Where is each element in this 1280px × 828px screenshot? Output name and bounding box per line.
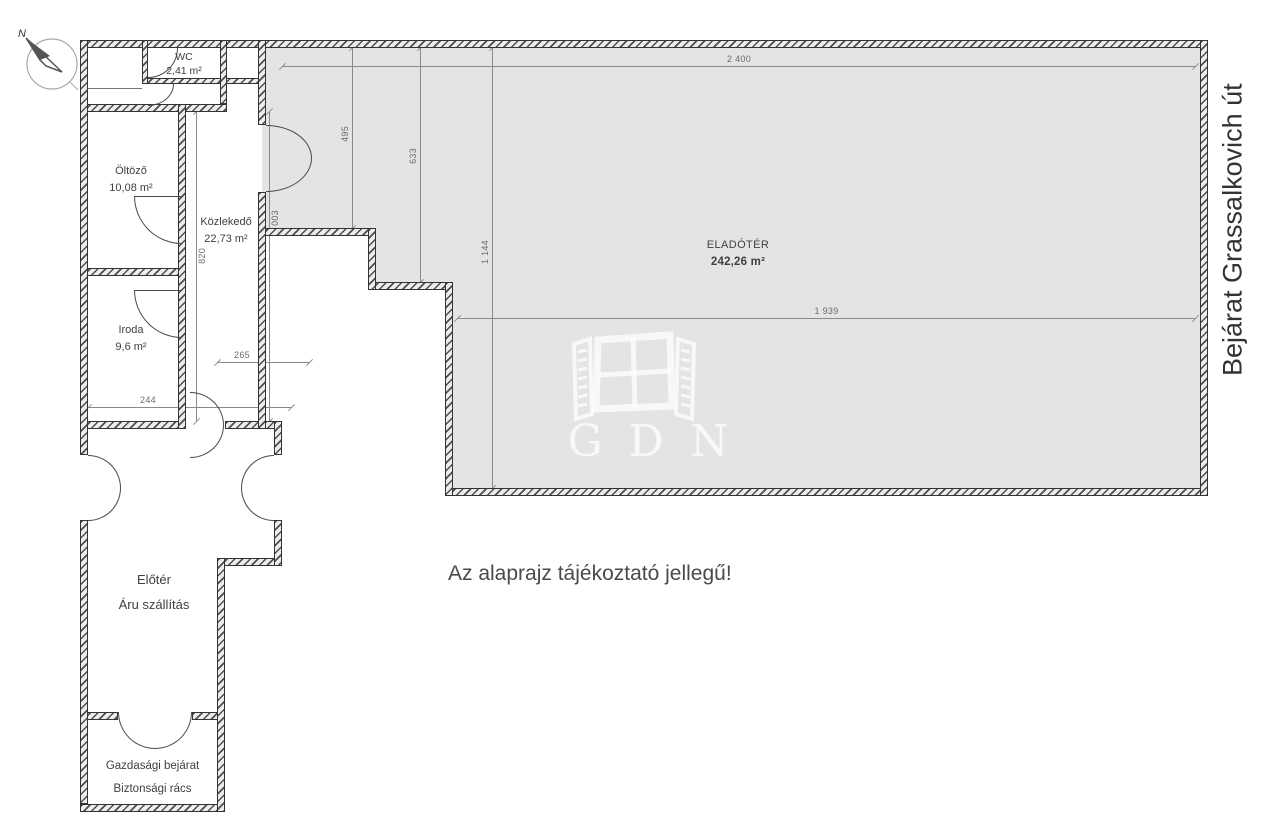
wall-left-upper — [80, 40, 88, 455]
gazdasagi-door-arc-left — [118, 712, 155, 749]
wc-door2-arc — [148, 84, 174, 106]
cell-divider-line — [88, 88, 142, 89]
wall-eladoter-bottom — [445, 488, 1208, 496]
wall-corridor-right-upper — [258, 40, 266, 125]
wall-eloter-right-upper — [274, 421, 282, 455]
eloter-right-door-arc-top — [241, 455, 274, 488]
eladoter-label: ELADÓTÉR 242,26 m² — [638, 237, 838, 271]
wall-iroda-bottom — [80, 421, 186, 429]
dim-line-495 — [352, 48, 353, 228]
kozlekedo-label: Közlekedő 22,73 m² — [188, 214, 264, 248]
eladoter-fill-top — [262, 44, 1204, 234]
dim-line-1939 — [457, 318, 1196, 319]
wc-name: WC — [175, 51, 193, 63]
corridor-door-arc-bottom — [190, 425, 224, 458]
eladoter-name: ELADÓTÉR — [707, 239, 770, 251]
dim-label-820: 820 — [197, 248, 207, 264]
dim-line-1144 — [492, 48, 493, 488]
gazdasagi-door-arc-right — [155, 712, 192, 749]
dim-line-820 — [196, 112, 197, 421]
wall-wc-divider-v2 — [220, 40, 227, 104]
oltozo-area: 10,08 m² — [86, 180, 176, 197]
wall-top — [80, 40, 1208, 48]
iroda-label: Iroda 9,6 m² — [86, 322, 176, 356]
gdn-window-icon — [566, 330, 702, 422]
gazdasagi-line1: Gazdasági bejárat — [106, 760, 199, 772]
oltozo-door-arc — [134, 196, 182, 244]
dim-label-1144: 1 144 — [480, 240, 490, 264]
dim-label-1939: 1 939 — [457, 306, 1196, 316]
wall-oltozo-iroda — [80, 268, 186, 276]
iroda-area: 9,6 m² — [86, 339, 176, 356]
eladoter-area: 242,26 m² — [638, 254, 838, 271]
dim-label-633: 633 — [408, 148, 418, 164]
corridor-door-arc-top — [190, 392, 224, 425]
oltozo-name: Öltöző — [115, 165, 147, 177]
gazdasagi-line2: Biztonsági rács — [85, 778, 220, 801]
iroda-name: Iroda — [118, 324, 143, 336]
gdn-watermark-text: GDN — [538, 416, 758, 467]
eloter-right-door-arc-bottom — [241, 488, 274, 521]
disclaimer-text: Az alaprajz tájékoztató jellegű! — [448, 562, 732, 586]
wall-step2-h — [368, 282, 453, 290]
street-entrance-label: Bejárat Grassalkovich út — [1212, 40, 1254, 420]
eloter-left-door-arc-bottom — [88, 488, 121, 521]
compass-north-letter: N — [18, 28, 26, 40]
wall-eladoter-left — [445, 282, 453, 496]
wall-eloter-right-lower — [274, 520, 282, 566]
floor-plan: GDN 2 400 1 939 495 633 1 144 1 003 820 … — [0, 0, 1280, 828]
wall-step1-v — [368, 228, 376, 290]
dim-line-633 — [420, 48, 421, 282]
dim-label-495: 495 — [340, 126, 350, 142]
wall-eloter-step — [217, 558, 282, 566]
wall-bottom — [80, 804, 225, 812]
eloter-line2: Áru szállítás — [90, 592, 218, 617]
gazdasagi-label: Gazdasági bejárat Biztonsági rács — [85, 755, 220, 801]
eloter-left-door-arc-top — [88, 455, 121, 488]
kozlekedo-name: Közlekedő — [200, 216, 251, 228]
wall-right — [1200, 40, 1208, 496]
wc-area: 2,41 m² — [148, 64, 220, 78]
oltozo-label: Öltöző 10,08 m² — [86, 163, 176, 197]
wc-label: WC 2,41 m² — [148, 50, 220, 78]
dim-label-244: 244 — [118, 395, 178, 405]
eloter-line1: Előtér — [137, 572, 171, 587]
kozlekedo-area: 22,73 m² — [188, 231, 264, 248]
wall-step1-h — [258, 228, 376, 236]
eloter-label: Előtér Áru szállítás — [90, 567, 218, 617]
compass-icon: N — [14, 24, 86, 96]
wall-corridor-left — [178, 104, 186, 429]
